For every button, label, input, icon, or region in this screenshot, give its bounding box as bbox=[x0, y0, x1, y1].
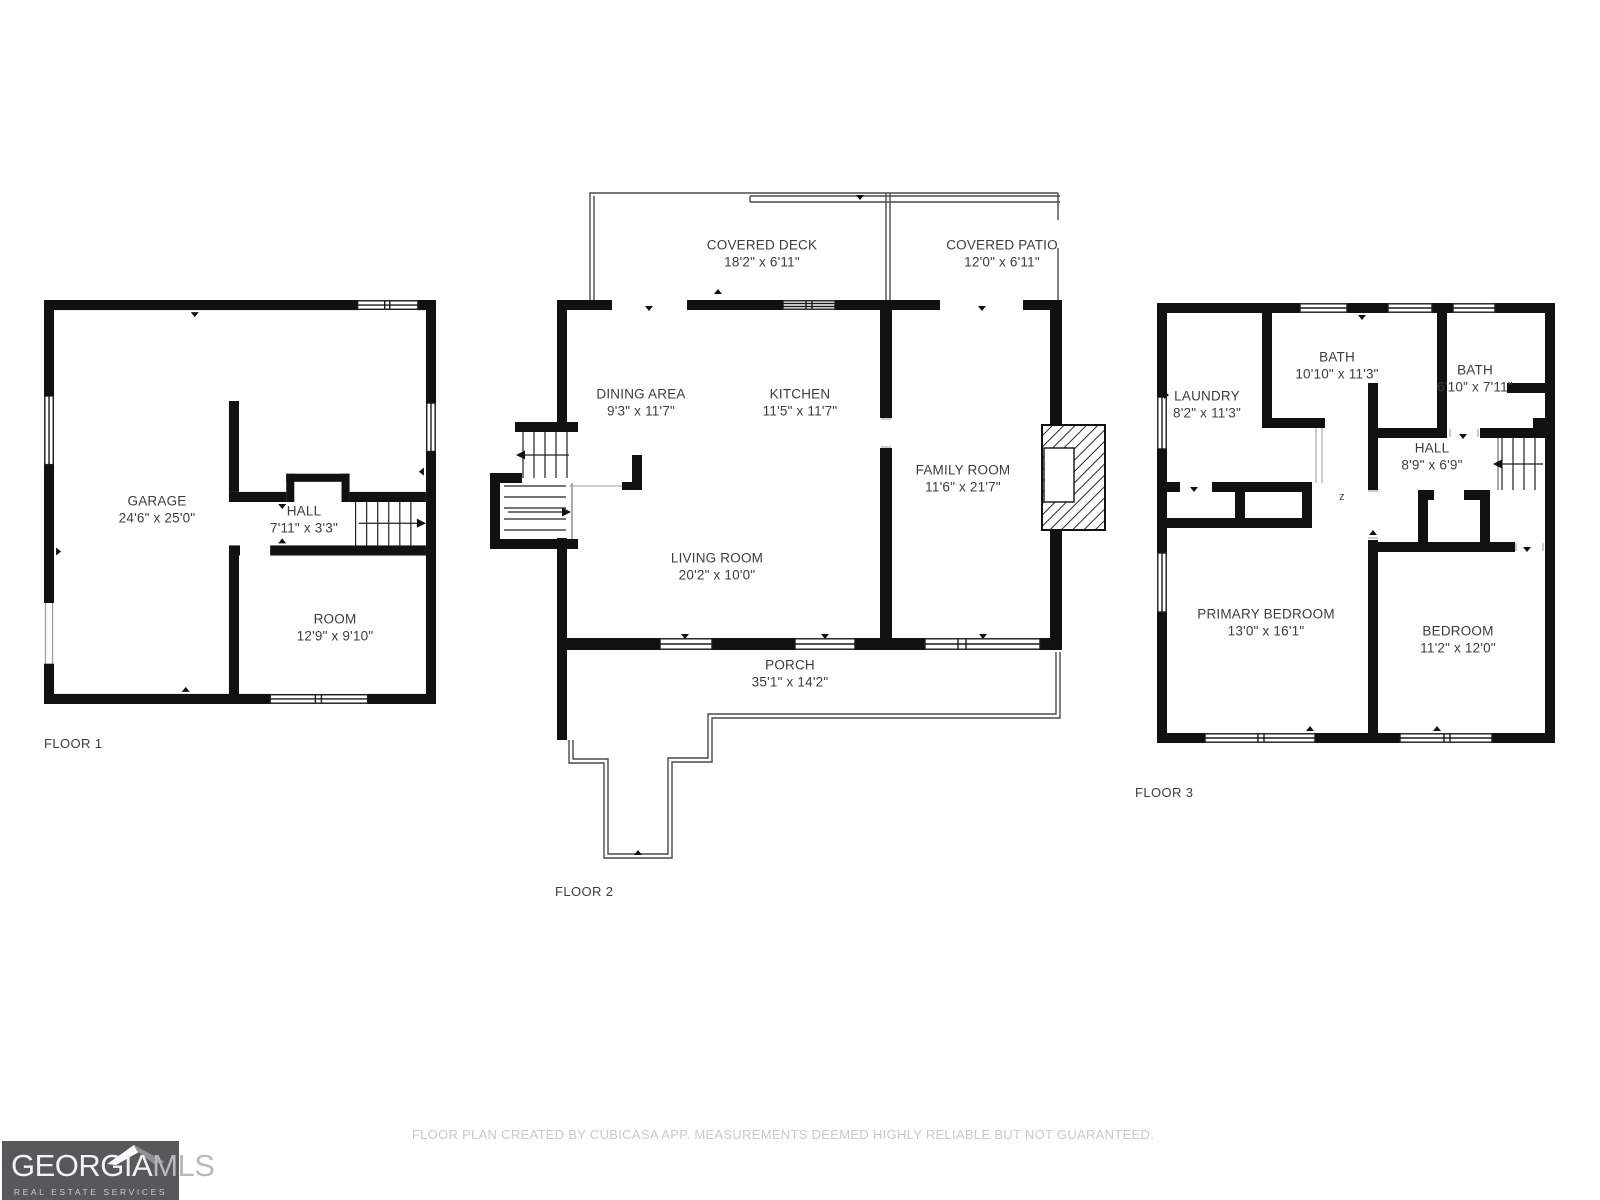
fireplace bbox=[1042, 425, 1105, 530]
room-label-bath-1: BATH 10'10" x 11'3" bbox=[1295, 350, 1378, 383]
logo-brand: GEORGIAMLS bbox=[11, 1149, 214, 1182]
room-dims: 9'3" x 11'7" bbox=[596, 403, 685, 420]
room-label-primary-bedroom: PRIMARY BEDROOM 13'0" x 16'1" bbox=[1197, 607, 1335, 640]
room-dims: 20'2" x 10'0" bbox=[671, 567, 763, 584]
room-name: DINING AREA bbox=[596, 387, 685, 404]
logo-brand-secondary: MLS bbox=[152, 1148, 214, 1183]
room-dims: 12'9" x 9'10" bbox=[297, 628, 374, 645]
room-name: ROOM bbox=[297, 612, 374, 629]
floor3-stairs bbox=[1493, 438, 1543, 490]
room-name: HALL bbox=[1401, 441, 1462, 458]
room-name: PORCH bbox=[752, 658, 829, 675]
floor1-stairs bbox=[356, 502, 426, 545]
room-dims: 8'2" x 11'3" bbox=[1173, 405, 1241, 422]
floor-1-label: FLOOR 1 bbox=[44, 736, 102, 751]
floor2-door-jambs bbox=[569, 419, 891, 486]
room-dims: 18'2" x 6'11" bbox=[707, 254, 817, 271]
room-name: BATH bbox=[1437, 363, 1513, 380]
floor2-markers bbox=[634, 195, 987, 855]
logo-tagline: REAL ESTATE SERVICES bbox=[2, 1187, 179, 1197]
room-label-hall-f1: HALL 7'11" x 3'3" bbox=[270, 504, 338, 537]
room-label-bedroom: BEDROOM 11'2" x 12'0" bbox=[1420, 624, 1496, 657]
room-dims: 10'10" x 11'3" bbox=[1295, 366, 1378, 383]
room-name: PRIMARY BEDROOM bbox=[1197, 607, 1335, 624]
room-label-room: ROOM 12'9" x 9'10" bbox=[297, 612, 374, 645]
room-name: COVERED PATIO bbox=[946, 238, 1058, 255]
room-dims: 24'6" x 25'0" bbox=[119, 510, 196, 527]
room-label-dining-area: DINING AREA 9'3" x 11'7" bbox=[596, 387, 685, 420]
room-label-kitchen: KITCHEN 11'5" x 11'7" bbox=[763, 387, 838, 420]
room-name: COVERED DECK bbox=[707, 238, 817, 255]
floor-1-plan bbox=[44, 300, 436, 704]
room-dims: 11'6" x 21'7" bbox=[916, 479, 1011, 496]
room-dims: 12'0" x 6'11" bbox=[946, 254, 1058, 271]
floor2-stairs bbox=[504, 432, 572, 539]
room-label-laundry: LAUNDRY 8'2" x 11'3" bbox=[1173, 389, 1241, 422]
room-dims: 11'5" x 11'7" bbox=[763, 403, 838, 420]
room-dims: 6'10" x 7'11" bbox=[1437, 379, 1513, 396]
room-label-garage: GARAGE 24'6" x 25'0" bbox=[119, 494, 196, 527]
room-name: BEDROOM bbox=[1420, 624, 1496, 641]
floor-2-label: FLOOR 2 bbox=[555, 884, 613, 899]
room-name: GARAGE bbox=[119, 494, 196, 511]
room-label-hall-f3: HALL 8'9" x 6'9" bbox=[1401, 441, 1462, 474]
room-name: LIVING ROOM bbox=[671, 551, 763, 568]
room-label-family-room: FAMILY ROOM 11'6" x 21'7" bbox=[916, 463, 1011, 496]
floor-2-plan bbox=[488, 186, 1108, 866]
room-dims: 35'1" x 14'2" bbox=[752, 674, 829, 691]
logo-brand-primary: GEORGIA bbox=[11, 1148, 152, 1183]
room-dims: 8'9" x 6'9" bbox=[1401, 457, 1462, 474]
floor1-garage-door-opening bbox=[44, 603, 54, 664]
room-name: HALL bbox=[270, 504, 338, 521]
room-dims: 13'0" x 16'1" bbox=[1197, 623, 1335, 640]
room-name: KITCHEN bbox=[763, 387, 838, 404]
room-name: LAUNDRY bbox=[1173, 389, 1241, 406]
room-label-bath-2: BATH 6'10" x 7'11" bbox=[1437, 363, 1513, 396]
room-dims: 11'2" x 12'0" bbox=[1420, 640, 1496, 657]
georgia-mls-logo: GEORGIAMLS REAL ESTATE SERVICES bbox=[2, 1141, 179, 1200]
room-name: BATH bbox=[1295, 350, 1378, 367]
room-label-porch: PORCH 35'1" x 14'2" bbox=[752, 658, 829, 691]
door-swing-marker: z bbox=[1339, 491, 1345, 503]
room-label-covered-patio: COVERED PATIO 12'0" x 6'11" bbox=[946, 238, 1058, 271]
disclaimer-text: FLOOR PLAN CREATED BY CUBICASA APP. MEAS… bbox=[412, 1127, 1154, 1142]
room-label-covered-deck: COVERED DECK 18'2" x 6'11" bbox=[707, 238, 817, 271]
room-name: FAMILY ROOM bbox=[916, 463, 1011, 480]
room-dims: 7'11" x 3'3" bbox=[270, 520, 338, 537]
floor-3-label: FLOOR 3 bbox=[1135, 785, 1193, 800]
room-label-living-room: LIVING ROOM 20'2" x 10'0" bbox=[671, 551, 763, 584]
